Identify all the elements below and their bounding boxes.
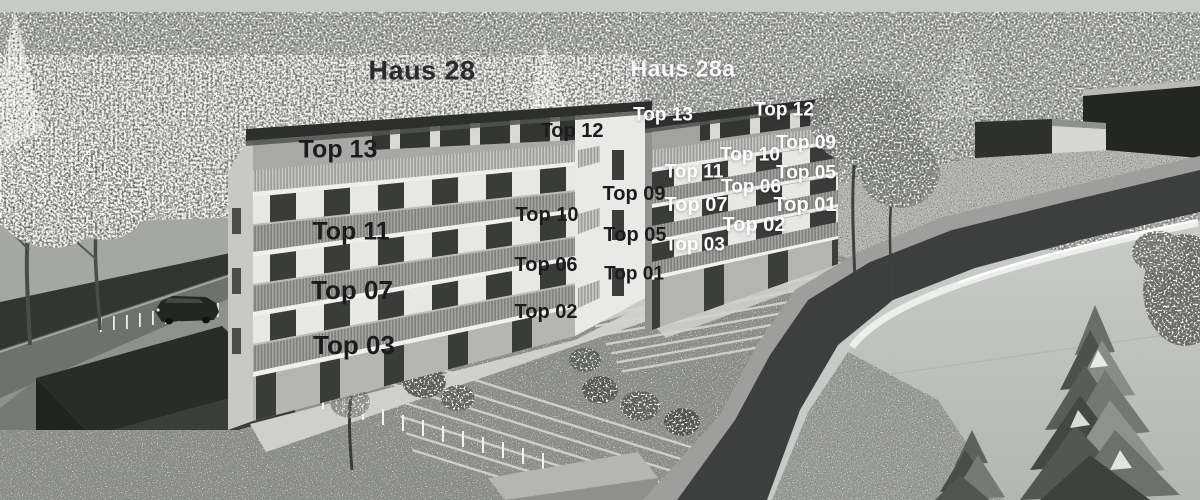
unit-label-haus-28a-top-01[interactable]: Top 01	[774, 195, 837, 215]
unit-label-haus-28-top-06[interactable]: Top 06	[515, 255, 578, 275]
unit-label-haus-28a-top-03[interactable]: Top 03	[665, 236, 725, 255]
unit-label-haus-28a-top-10[interactable]: Top 10	[720, 146, 780, 165]
unit-label-haus-28-top-01[interactable]: Top 01	[604, 265, 664, 284]
unit-label-haus-28-top-10[interactable]: Top 10	[516, 205, 579, 225]
unit-label-haus-28a-top-02[interactable]: Top 02	[723, 215, 786, 235]
architectural-rendering: Haus 28Top 13Top 12Top 11Top 10Top 09Top…	[0, 0, 1200, 500]
unit-label-haus-28a-top-13[interactable]: Top 13	[633, 106, 693, 125]
unit-label-haus-28-top-09[interactable]: Top 09	[603, 184, 666, 204]
unit-label-haus-28-top-07[interactable]: Top 07	[311, 277, 393, 303]
unit-label-haus-28-top-12[interactable]: Top 12	[541, 121, 604, 141]
unit-label-haus-28a-top-06[interactable]: Top 06	[721, 178, 781, 197]
unit-label-haus-28-top-02[interactable]: Top 02	[515, 302, 578, 322]
unit-label-haus-28a-top-09[interactable]: Top 09	[776, 134, 836, 153]
building-title-haus-28a: Haus 28a	[630, 58, 735, 81]
unit-label-haus-28a-top-05[interactable]: Top 05	[776, 164, 836, 183]
unit-label-haus-28-top-05[interactable]: Top 05	[604, 225, 667, 245]
unit-label-haus-28a-top-07[interactable]: Top 07	[665, 195, 728, 215]
unit-label-haus-28a-top-12[interactable]: Top 12	[754, 101, 814, 120]
building-title-haus-28: Haus 28	[368, 58, 475, 85]
unit-label-haus-28-top-03[interactable]: Top 03	[313, 332, 395, 358]
unit-label-haus-28a-top-11[interactable]: Top 11	[665, 163, 724, 182]
unit-label-haus-28-top-11[interactable]: Top 11	[312, 220, 389, 245]
unit-label-haus-28-top-13[interactable]: Top 13	[299, 138, 378, 163]
unit-label-overlay: Haus 28Top 13Top 12Top 11Top 10Top 09Top…	[0, 0, 1200, 500]
